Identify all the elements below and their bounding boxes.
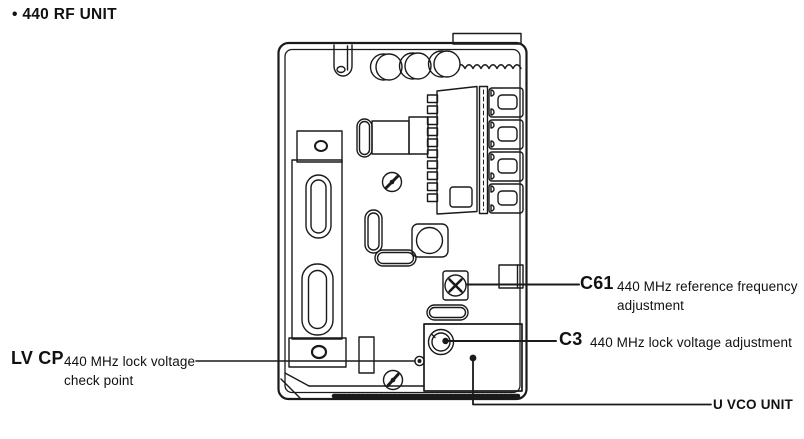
trimmer-capacitor — [412, 224, 448, 257]
lv-cp-test-point — [415, 356, 424, 365]
callout-c3-desc: 440 MHz lock voltage adjustment — [590, 333, 804, 352]
callout-lvcp-ref: LV CP — [11, 348, 64, 369]
zigzag-edge — [457, 65, 521, 69]
bracket-slot-upper — [306, 175, 331, 238]
trimmer-can-row — [371, 51, 461, 80]
bracket-slot-lower — [302, 264, 333, 335]
c61-trimmer — [443, 271, 468, 300]
screw-icon — [383, 173, 402, 192]
callout-uvco-ref: U VCO UNIT — [713, 397, 793, 412]
bottom-edge-details — [281, 373, 518, 398]
connector-teeth — [428, 95, 438, 202]
callout-lvcp-desc: 440 MHz lock voltage check point — [64, 352, 204, 390]
connector-modules — [489, 88, 523, 213]
callout-c61-ref: C61 — [580, 273, 614, 294]
callout-c61-desc: 440 MHz reference frequency adjustment — [617, 277, 803, 315]
standoff-block — [359, 337, 374, 373]
manual-page: • 440 RF UNIT C61 440 MHz reference freq… — [0, 0, 804, 439]
callout-c3-ref: C3 — [559, 329, 582, 350]
connector-block — [428, 87, 488, 215]
mounting-bracket — [289, 131, 346, 367]
page-title: • 440 RF UNIT — [12, 6, 117, 24]
capacitor-capsules — [365, 210, 468, 320]
relay-can — [357, 117, 428, 157]
